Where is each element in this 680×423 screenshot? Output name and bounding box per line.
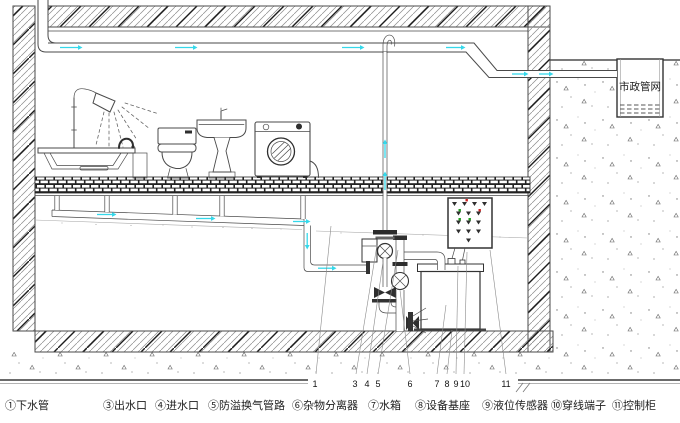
first-floor-slab — [35, 177, 530, 196]
callout-5: 5 — [375, 379, 380, 389]
callout-9: 9 — [453, 379, 458, 389]
legend-item-outlet: ③出水口 — [103, 398, 147, 412]
callout-7: 7 — [434, 379, 439, 389]
legend-item-level-sensor: ⑨液位传感器 — [482, 398, 548, 412]
left-wall — [13, 6, 35, 331]
municipal-network-label: 市政管网 — [619, 80, 661, 93]
legend-item-down-pipe: ①下水管 — [5, 398, 49, 412]
legend: ①下水管 ③出水口 ④进水口 ⑤防溢换气管路 ⑥杂物分离器 ⑦水箱 ⑧设备基座 … — [5, 398, 656, 412]
callout-1: 1 — [312, 379, 317, 389]
callout-11: 11 — [501, 379, 510, 389]
callout-numbers: 1 3 4 5 6 7 8 9 10 11 — [308, 375, 530, 392]
sewage-tank — [418, 259, 484, 330]
diagram-page: 市政管网 — [0, 0, 680, 423]
legend-item-wiring-terminal: ⑩穿线端子 — [551, 398, 606, 412]
callout-8: 8 — [444, 379, 449, 389]
level-sensor-gland — [460, 260, 465, 264]
legend-item-water-tank: ⑦水箱 — [368, 398, 401, 412]
control-cabinet — [448, 198, 492, 248]
washing-machine — [255, 122, 319, 178]
callout-4: 4 — [364, 379, 369, 389]
sewage-lift-system-diagram: 市政管网 — [0, 0, 680, 423]
sewage-lifting-unit — [362, 198, 492, 333]
legend-item-overflow-vent: ⑤防溢换气管路 — [208, 398, 285, 412]
collector-drain-pipe — [52, 196, 368, 272]
sink — [197, 108, 246, 178]
legend-item-debris-separator: ⑥杂物分离器 — [292, 398, 358, 412]
wiring-terminal — [448, 259, 455, 265]
legend-item-control-cabinet: ⑪控制柜 — [612, 398, 656, 412]
shower — [72, 89, 160, 150]
callout-10: 10 — [460, 379, 470, 389]
roof-slab — [48, 6, 550, 31]
callout-6: 6 — [407, 379, 412, 389]
municipal-network-box: 市政管网 — [617, 59, 663, 117]
discharge-riser-pipe — [383, 35, 395, 231]
inlet-flange — [366, 261, 370, 274]
callout-3: 3 — [352, 379, 357, 389]
bathtub — [38, 139, 147, 178]
basement-floor-slab — [35, 331, 553, 352]
break-marks — [516, 383, 530, 392]
legend-item-equipment-base: ⑧设备基座 — [415, 398, 470, 412]
right-wall — [528, 6, 550, 352]
fixtures — [38, 89, 319, 178]
legend-item-inlet: ④进水口 — [155, 399, 199, 412]
toilet — [158, 128, 196, 178]
